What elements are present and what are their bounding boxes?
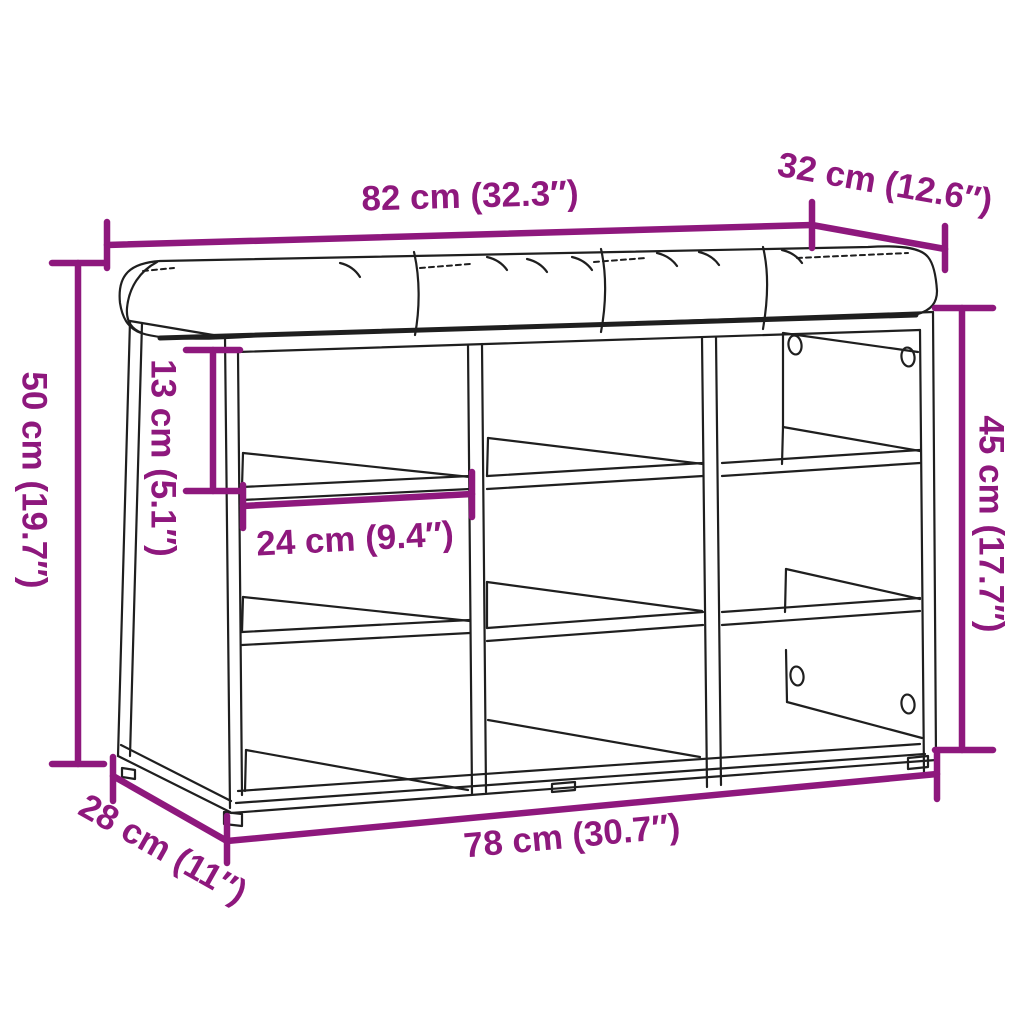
shelf-back-corner bbox=[782, 427, 783, 464]
divider-1-right-edge bbox=[482, 344, 486, 792]
shelf-back-corner bbox=[487, 438, 488, 476]
divider-1-left-edge bbox=[468, 345, 472, 794]
shelf-back-edge bbox=[783, 427, 920, 451]
screw-hole bbox=[787, 335, 803, 356]
shelves-column-2 bbox=[487, 438, 703, 757]
left-panel-bottom-edge bbox=[118, 756, 230, 812]
bench-drawing bbox=[118, 246, 937, 826]
screw-hole bbox=[900, 694, 916, 715]
dim-overall-depth: 32 cm (12.6″) bbox=[775, 145, 996, 270]
furniture-dimension-diagram: 82 cm (32.3″) 32 cm (12.6″) 50 cm (19.7″… bbox=[0, 0, 1024, 1024]
stitch-line bbox=[797, 253, 908, 258]
shelf-front-bottom bbox=[242, 633, 470, 645]
back-panel-corner bbox=[786, 650, 787, 702]
tuft-crease bbox=[782, 250, 802, 263]
shelf-front-top bbox=[487, 612, 703, 628]
shelf-back-edge bbox=[786, 569, 920, 599]
divider-2-left-edge bbox=[702, 338, 707, 787]
floor-back-corner bbox=[245, 750, 246, 791]
cabinet-frame bbox=[225, 312, 936, 813]
foot-back-left bbox=[122, 768, 135, 779]
shelf-front-top bbox=[487, 463, 703, 476]
shelf-back-edge bbox=[243, 453, 470, 477]
dim-compartment-height-label: 13 cm (5.1″) bbox=[144, 359, 183, 557]
shelf-back-edge bbox=[243, 597, 470, 621]
floor-back-edge bbox=[246, 750, 468, 790]
screw-holes bbox=[787, 335, 916, 715]
bottom-rail-edge bbox=[236, 754, 925, 803]
tuft-crease bbox=[340, 263, 360, 277]
shelf-front-bottom bbox=[722, 611, 920, 625]
diagram-canvas: 82 cm (32.3″) 32 cm (12.6″) 50 cm (19.7″… bbox=[0, 0, 1024, 1024]
shelf-front-top bbox=[722, 598, 920, 612]
cushion-seam bbox=[763, 247, 767, 329]
shelf-back-corner bbox=[242, 597, 243, 632]
back-panel-top-edge bbox=[783, 333, 918, 352]
shelves-column-3 bbox=[722, 333, 922, 738]
dim-compartment-width-label: 24 cm (9.4″) bbox=[255, 514, 454, 563]
floor-back-edge bbox=[488, 720, 700, 757]
shelf-front-top bbox=[242, 620, 470, 632]
dim-overall-depth-label: 32 cm (12.6″) bbox=[775, 145, 996, 221]
right-panel-inner-edge bbox=[920, 330, 924, 775]
tuft-crease bbox=[487, 257, 507, 270]
dim-line bbox=[243, 494, 472, 506]
cushion-tufting-creases bbox=[340, 250, 802, 277]
tuft-crease bbox=[657, 253, 677, 266]
right-panel-outer-edge bbox=[933, 312, 936, 758]
dim-interior-height: 45 cm (17.7″) bbox=[935, 308, 1011, 750]
dim-interior-height-label: 45 cm (17.7″) bbox=[972, 415, 1011, 632]
dim-overall-height-label: 50 cm (19.7″) bbox=[15, 371, 54, 588]
shelf-front-top bbox=[722, 450, 920, 463]
dim-line bbox=[107, 225, 812, 245]
tuft-crease bbox=[527, 259, 547, 272]
left-panel-front-edge bbox=[225, 337, 230, 808]
screw-hole bbox=[789, 666, 805, 687]
shelf-back-edge bbox=[487, 582, 702, 611]
stitch-line bbox=[420, 264, 470, 268]
dim-overall-height: 50 cm (19.7″) bbox=[15, 263, 105, 764]
shelf-back-edge bbox=[488, 438, 703, 464]
left-panel-back-inner-edge bbox=[130, 323, 142, 756]
shelf-front-bottom bbox=[487, 625, 703, 641]
shelf-front-top bbox=[242, 476, 470, 487]
shelf-front-bottom bbox=[487, 476, 703, 489]
seat-cushion bbox=[120, 246, 937, 338]
shelf-back-corner bbox=[785, 569, 786, 612]
shelf-front-bottom bbox=[722, 463, 920, 476]
divider-2-right-edge bbox=[716, 337, 721, 785]
cushion-seam bbox=[414, 252, 419, 335]
dim-overall-width-label: 82 cm (32.3″) bbox=[361, 173, 579, 218]
left-panel-back-edge bbox=[118, 321, 130, 756]
tuft-crease bbox=[572, 257, 592, 270]
tuft-crease bbox=[699, 252, 719, 265]
left-upright-inner-edge bbox=[238, 352, 242, 795]
